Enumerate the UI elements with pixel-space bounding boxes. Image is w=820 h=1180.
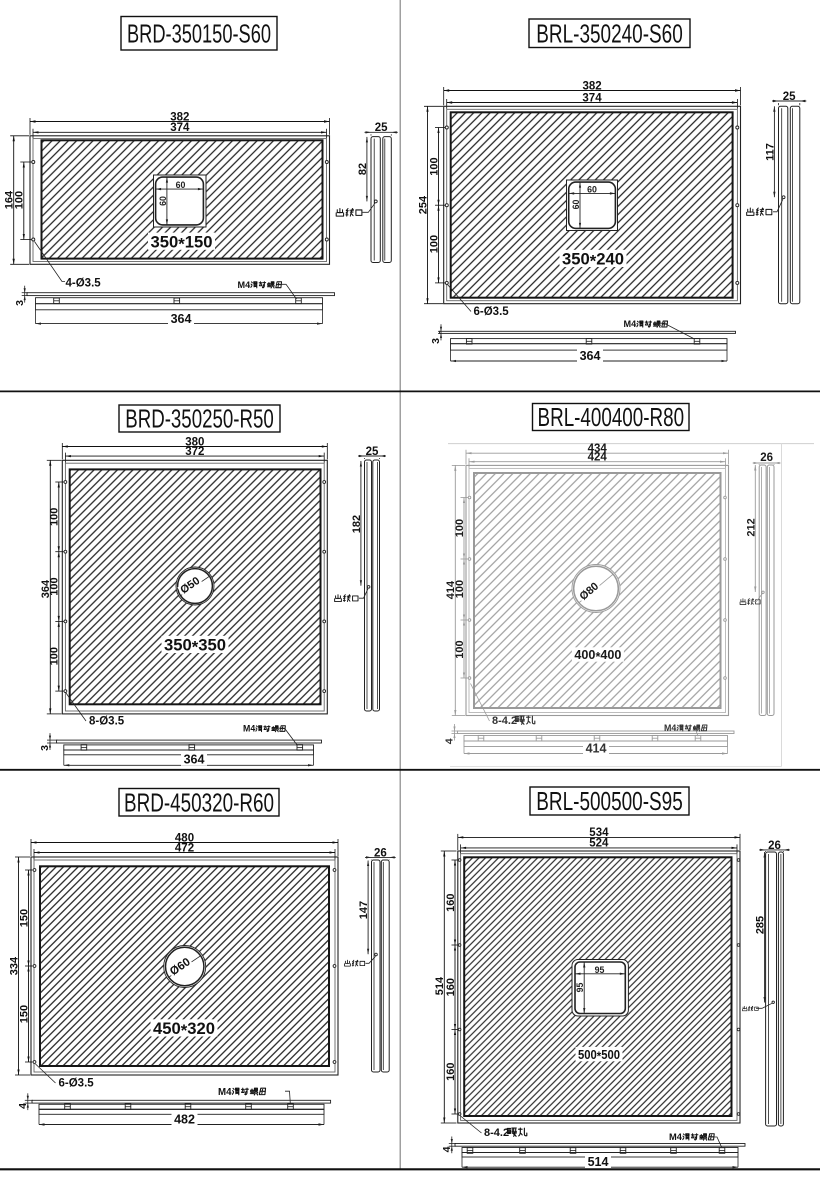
svg-text:60: 60: [587, 184, 597, 194]
svg-text:160: 160: [445, 894, 457, 912]
svg-text:514: 514: [588, 1155, 609, 1169]
svg-text:414: 414: [586, 742, 607, 756]
svg-text:26: 26: [760, 452, 773, 464]
svg-text:100: 100: [454, 640, 466, 658]
svg-text:BRL-400400-R80: BRL-400400-R80: [538, 404, 685, 432]
svg-text:M4: M4: [218, 1087, 232, 1098]
svg-text:100: 100: [49, 577, 61, 595]
svg-text:212: 212: [745, 518, 757, 536]
svg-text:350*350: 350*350: [164, 637, 226, 657]
svg-text:100: 100: [49, 647, 61, 665]
svg-text:8-4.2: 8-4.2: [484, 1127, 509, 1139]
svg-text:160: 160: [445, 1063, 457, 1081]
svg-text:M4: M4: [669, 1132, 683, 1142]
svg-text:60: 60: [158, 196, 168, 206]
svg-text:254: 254: [417, 195, 429, 214]
svg-text:3: 3: [430, 338, 442, 344]
svg-text:M4: M4: [664, 723, 676, 733]
svg-text:25: 25: [366, 446, 379, 458]
svg-text:100: 100: [454, 580, 466, 598]
svg-text:3: 3: [39, 745, 51, 751]
svg-text:26: 26: [768, 840, 781, 852]
svg-text:4: 4: [17, 1103, 29, 1109]
svg-text:160: 160: [445, 978, 457, 996]
svg-text:8-Ø3.5: 8-Ø3.5: [89, 716, 125, 728]
svg-text:100: 100: [14, 191, 26, 209]
svg-text:4-Ø3.5: 4-Ø3.5: [66, 278, 102, 290]
svg-text:25: 25: [375, 122, 388, 134]
svg-text:374: 374: [170, 122, 190, 134]
svg-text:100: 100: [428, 157, 440, 175]
svg-text:285: 285: [755, 916, 767, 934]
svg-text:500*500: 500*500: [578, 1047, 620, 1064]
svg-text:60: 60: [176, 180, 186, 190]
svg-text:4: 4: [441, 1146, 453, 1152]
svg-text:6-Ø3.5: 6-Ø3.5: [59, 1077, 95, 1089]
svg-text:BRD-450320-R60: BRD-450320-R60: [124, 790, 274, 818]
svg-text:100: 100: [49, 508, 61, 526]
svg-text:364: 364: [184, 753, 205, 767]
svg-text:182: 182: [351, 515, 363, 533]
svg-text:372: 372: [185, 446, 204, 458]
svg-text:364: 364: [171, 312, 192, 326]
svg-text:482: 482: [174, 1113, 195, 1127]
svg-text:3: 3: [14, 300, 26, 306]
svg-text:BRL-350240-S60: BRL-350240-S60: [536, 21, 683, 49]
svg-text:334: 334: [8, 956, 20, 975]
svg-text:450*320: 450*320: [153, 1020, 215, 1040]
svg-text:4: 4: [444, 738, 456, 744]
svg-text:117: 117: [764, 143, 776, 161]
svg-text:BRD-350250-R50: BRD-350250-R50: [125, 406, 274, 434]
svg-text:424: 424: [588, 452, 608, 464]
svg-text:25: 25: [783, 91, 796, 103]
svg-text:6-Ø3.5: 6-Ø3.5: [474, 306, 510, 318]
svg-text:M4: M4: [624, 319, 638, 329]
svg-text:382: 382: [583, 80, 602, 92]
svg-text:BRL-500500-S95: BRL-500500-S95: [536, 788, 683, 816]
svg-text:150: 150: [18, 1005, 30, 1023]
svg-text:BRD-350150-S60: BRD-350150-S60: [127, 21, 271, 49]
svg-text:M4: M4: [243, 724, 255, 734]
svg-text:M4: M4: [238, 280, 252, 290]
svg-text:100: 100: [454, 519, 466, 537]
svg-text:60: 60: [571, 200, 581, 210]
svg-text:100: 100: [428, 235, 440, 253]
svg-text:150: 150: [18, 909, 30, 927]
svg-text:82: 82: [357, 163, 369, 175]
svg-text:350*150: 350*150: [151, 233, 213, 253]
svg-text:472: 472: [175, 842, 194, 854]
svg-text:8-4.2: 8-4.2: [492, 715, 517, 727]
svg-text:350*240: 350*240: [562, 251, 624, 271]
svg-text:147: 147: [358, 901, 370, 919]
svg-text:364: 364: [580, 349, 601, 363]
svg-text:26: 26: [374, 847, 387, 859]
svg-text:524: 524: [589, 838, 609, 850]
svg-text:374: 374: [582, 92, 602, 104]
svg-text:95: 95: [595, 965, 605, 975]
svg-text:95: 95: [575, 983, 585, 993]
svg-text:400*400: 400*400: [574, 647, 621, 664]
